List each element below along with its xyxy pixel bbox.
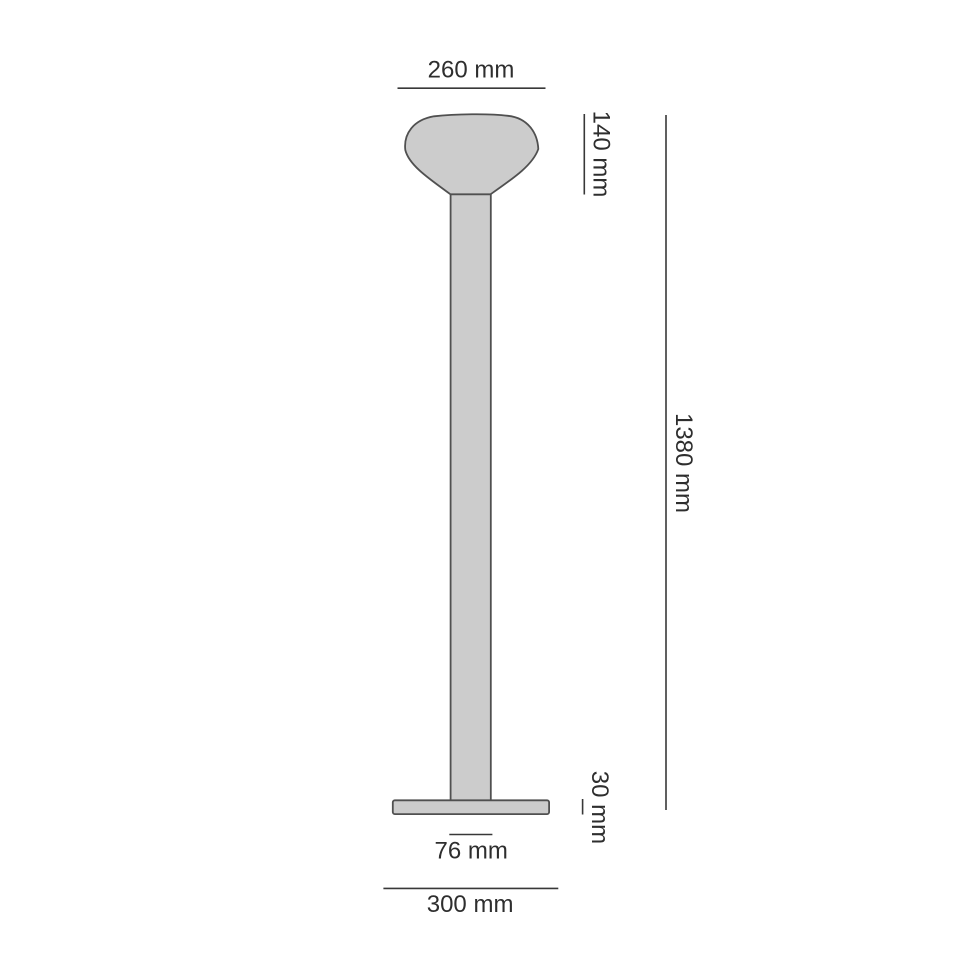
svg-text:140 mm: 140 mm	[588, 111, 615, 198]
svg-text:76 mm: 76 mm	[435, 837, 508, 864]
svg-text:260 mm: 260 mm	[428, 57, 515, 84]
svg-text:1380 mm: 1380 mm	[670, 413, 697, 513]
svg-text:30 mm: 30 mm	[586, 771, 613, 844]
svg-text:300 mm: 300 mm	[427, 891, 514, 918]
